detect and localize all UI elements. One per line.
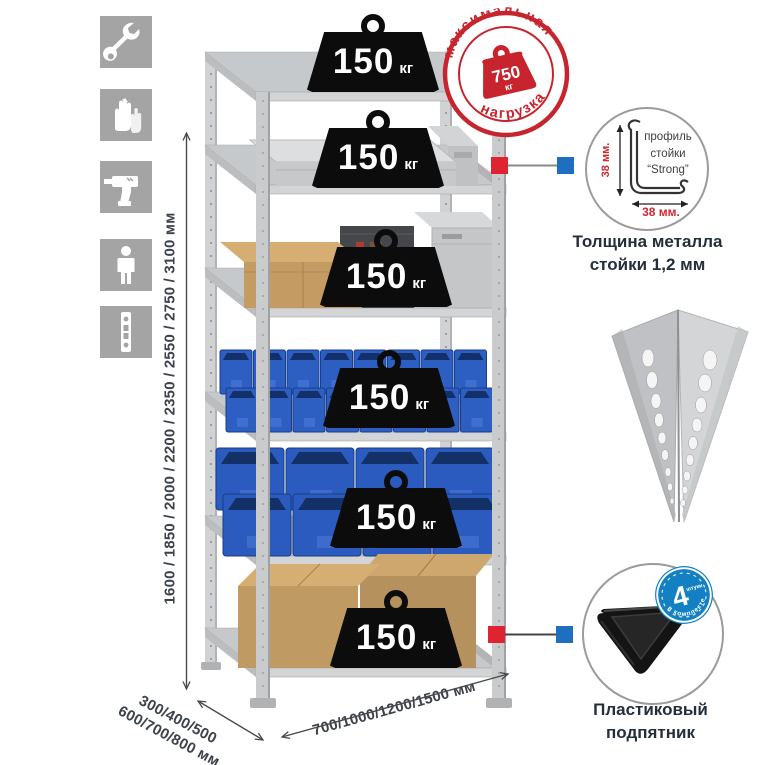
quantity-badge: 4 штуки в комплекте <box>655 566 713 624</box>
thickness-caption: Толщина металла стойки 1,2 мм <box>545 231 750 277</box>
load-unit: кг <box>422 516 436 533</box>
load-unit: кг <box>399 60 413 77</box>
max-load-stamp-graphic: максимальная нагрузка 750 кг <box>427 0 585 153</box>
product-infographic: 1600 / 1850 / 2000 / 2200 / 2350 / 2550 … <box>0 0 765 765</box>
load-unit: кг <box>404 156 418 173</box>
load-value: 150 <box>349 368 410 428</box>
gloves-icon-glyph <box>100 89 152 141</box>
wrench-icon <box>100 16 152 68</box>
quantity-badge-graphic: 4 штуки в комплекте <box>655 566 713 624</box>
shelf5-load-weight: 150кг <box>330 470 462 548</box>
person-icon <box>100 239 152 291</box>
thickness-caption-line2: стойки 1,2 мм <box>545 254 750 277</box>
foot-callout-blue-square <box>556 626 573 643</box>
wrench-icon-glyph <box>100 16 152 68</box>
gloves-icon <box>100 89 152 141</box>
profile-callout-blue-square <box>557 157 574 174</box>
profile-label-line3: “Strong” <box>635 162 701 179</box>
height-dimension-label: 1600 / 1850 / 2000 / 2200 / 2350 / 2550 … <box>162 129 179 689</box>
foot-caption-line2: подпятник <box>548 722 753 745</box>
foot-caption-line1: Пластиковый <box>548 699 753 722</box>
shelf4-load-weight: 150кг <box>323 350 455 428</box>
shelf2-load-weight: 150кг <box>312 110 444 188</box>
drill-icon <box>100 161 152 213</box>
profile-detail-circle: профиль стойки “Strong” 38 мм. 38 мм. <box>585 107 709 231</box>
profile-horizontal-dimension: 38 мм. <box>631 205 691 219</box>
angle-post-image <box>602 296 758 536</box>
max-load-stamp: максимальная нагрузка 750 кг <box>427 0 585 153</box>
person-icon-glyph <box>100 239 152 291</box>
load-unit: кг <box>412 275 426 292</box>
perforated-post-icon <box>100 306 152 358</box>
load-value: 150 <box>338 128 399 188</box>
profile-label: профиль стойки “Strong” <box>635 129 701 179</box>
shelf6-load-weight: 150кг <box>330 590 462 668</box>
shelf3-load-weight: 150кг <box>320 229 452 307</box>
drill-icon-glyph <box>100 161 152 213</box>
load-value: 150 <box>346 247 407 307</box>
perforated-post-icon-glyph <box>100 306 152 358</box>
shelf1-load-weight: 150кг <box>307 14 439 92</box>
foot-caption: Пластиковый подпятник <box>548 699 753 745</box>
profile-label-line1: профиль <box>635 129 701 146</box>
load-unit: кг <box>422 636 436 653</box>
load-value: 150 <box>333 32 394 92</box>
load-value: 150 <box>356 488 417 548</box>
load-value: 150 <box>356 608 417 668</box>
load-unit: кг <box>415 396 429 413</box>
thickness-caption-line1: Толщина металла <box>545 231 750 254</box>
profile-vertical-dimension: 38 мм. <box>600 132 614 188</box>
profile-label-line2: стойки <box>635 146 701 163</box>
